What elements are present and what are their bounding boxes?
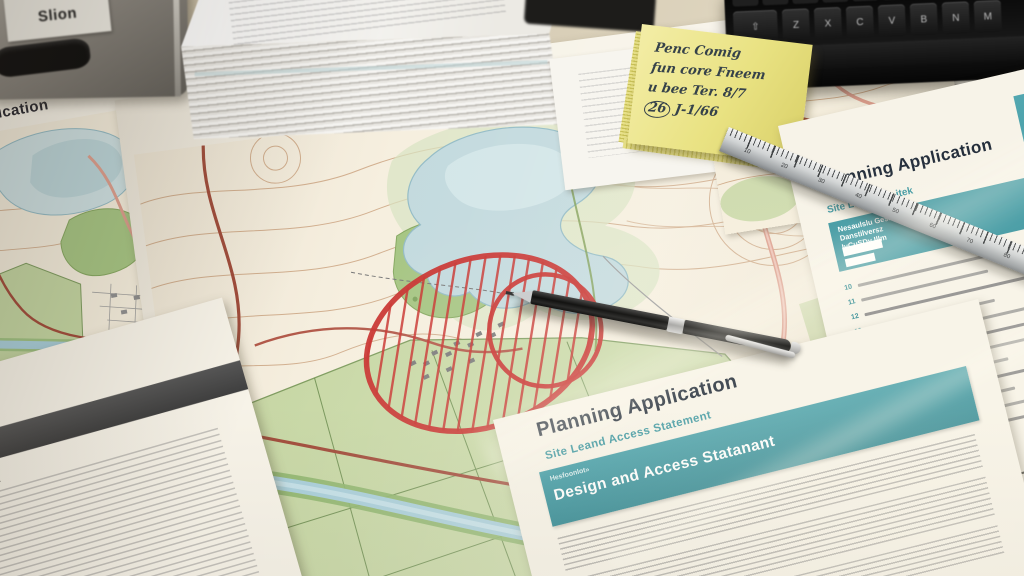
keyboard-key[interactable]: X (814, 7, 842, 40)
sticky-note-handwriting: Penc Comig fun core Fneem u bee Ter. 8/7… (642, 39, 770, 127)
desk-scene: ning Application (0, 0, 1024, 576)
printer-label: Slion (4, 0, 112, 42)
row-number: 12 (844, 313, 859, 323)
pen-tip (511, 287, 533, 303)
keyboard-key[interactable]: N (942, 1, 970, 34)
document-teal-block (1013, 54, 1024, 194)
keyboard-key[interactable]: V (878, 4, 906, 37)
printer-slot (0, 37, 92, 78)
row-number: 11 (841, 298, 856, 308)
keyboard-key[interactable]: M (974, 0, 1002, 33)
keyboard-key[interactable]: C (846, 6, 874, 39)
body-text-lines (0, 428, 265, 576)
circled-number: 26 (643, 100, 672, 118)
keyboard-key[interactable]: Z (782, 8, 810, 41)
keyboard-key[interactable]: B (910, 3, 938, 36)
row-number: 10 (838, 284, 853, 294)
desk-printer: Slion (0, 0, 189, 100)
paper-stack (174, 0, 573, 144)
